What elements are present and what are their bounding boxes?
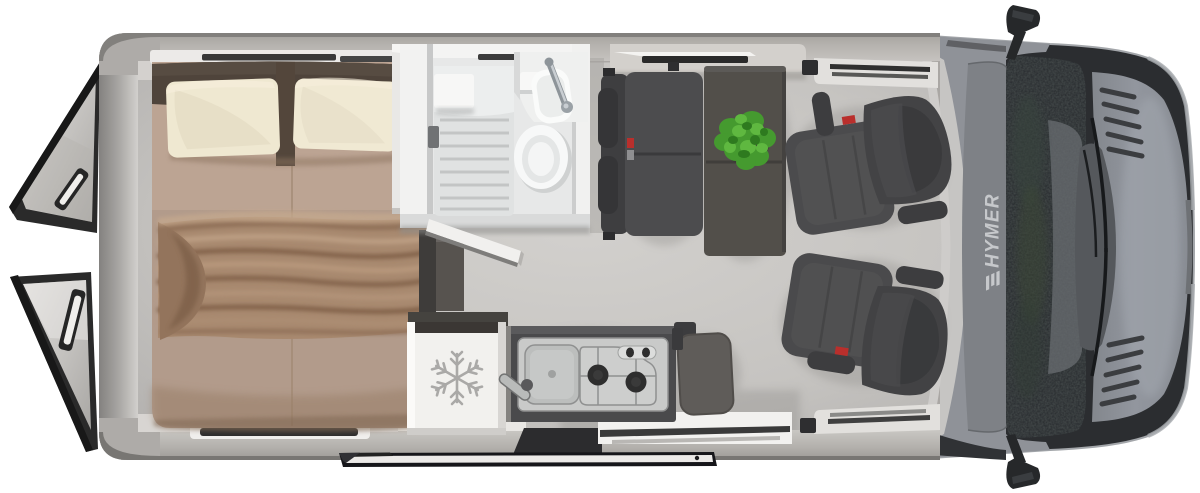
svg-text:HYMER: HYMER — [983, 193, 1004, 268]
